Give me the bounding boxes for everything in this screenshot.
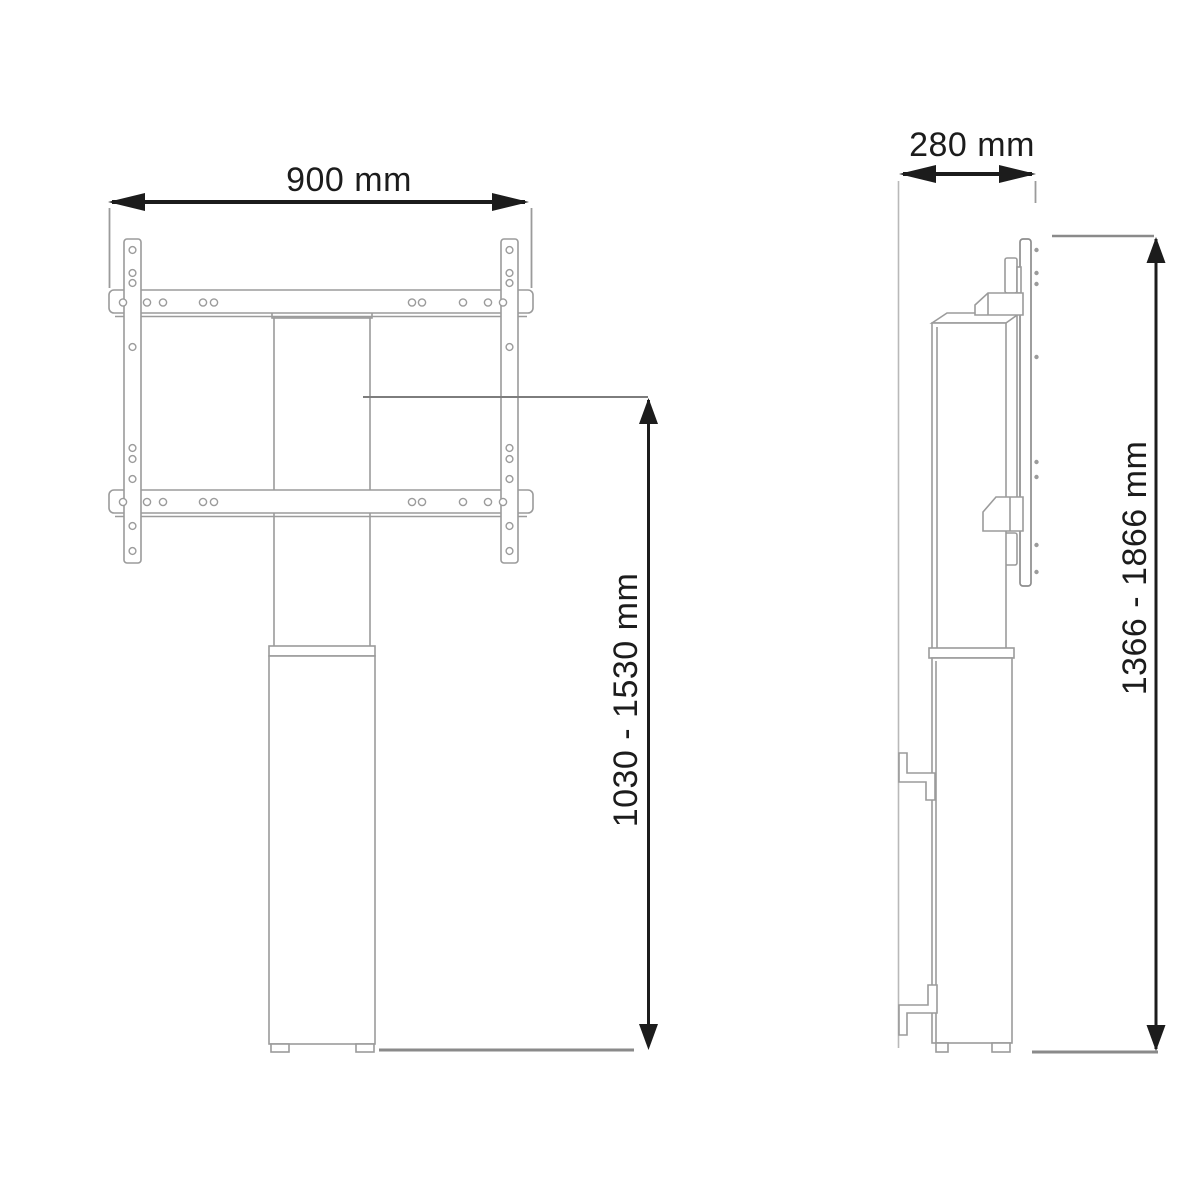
side-view: 280 mm 1366 - 1866 mm [899,126,1166,1052]
side-top-mounting-bar [975,293,1023,315]
front-right-foot [356,1044,374,1052]
arrow-left-icon [108,193,145,211]
front-outer-column [269,656,375,1044]
side-outer-column-lip [929,648,1014,658]
side-rail-screw-dots [1034,248,1038,574]
front-inner-column [274,318,370,648]
technical-drawing-page: 900 mm 1030 - 1530 mm [0,0,1200,1200]
front-width-dimension: 900 mm [108,161,532,288]
side-top-bracket-plate [1017,267,1021,293]
side-outer-column [932,658,1012,1043]
front-left-rail [124,239,141,563]
front-bottom-mounting-bar [109,490,533,513]
front-right-rail [501,239,518,563]
front-width-dimension-label: 900 mm [286,161,412,199]
side-top-bracket [1005,258,1017,293]
side-front-foot [936,1043,948,1052]
arrow-down-icon [639,1024,658,1050]
side-inner-column [932,323,1006,650]
front-height-dimension-label: 1030 - 1530 mm [607,573,645,828]
side-height-dimension: 1366 - 1866 mm [1116,237,1166,1051]
front-top-mounting-bar [109,290,533,313]
arrow-up-icon [639,398,658,424]
arrow-right-icon [999,165,1036,183]
side-depth-dimension-label: 280 mm [909,126,1035,164]
side-back-foot [992,1043,1010,1052]
front-view: 900 mm 1030 - 1530 mm [108,161,658,1052]
arrow-down-icon [1147,1025,1166,1051]
display-stand-dimension-drawing: 900 mm 1030 - 1530 mm [0,0,1200,1200]
side-depth-dimension: 280 mm [899,126,1036,203]
arrow-up-icon [1147,237,1166,263]
front-left-foot [271,1044,289,1052]
arrow-left-icon [899,165,936,183]
arrow-right-icon [492,193,529,211]
side-height-dimension-label: 1366 - 1866 mm [1116,441,1154,696]
front-outer-column-lip [269,646,375,656]
side-upper-cable-hook [899,753,935,800]
